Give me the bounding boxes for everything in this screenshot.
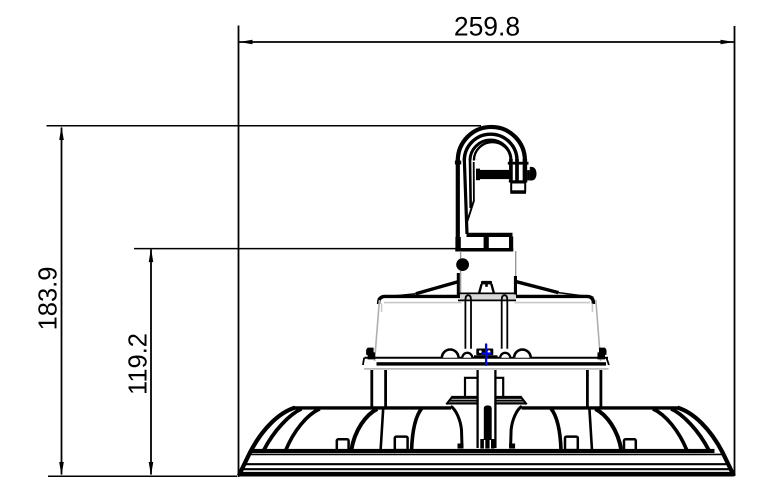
svg-text:259.8: 259.8 [454, 11, 520, 41]
svg-text:183.9: 183.9 [35, 267, 63, 331]
svg-text:119.2: 119.2 [125, 333, 153, 395]
